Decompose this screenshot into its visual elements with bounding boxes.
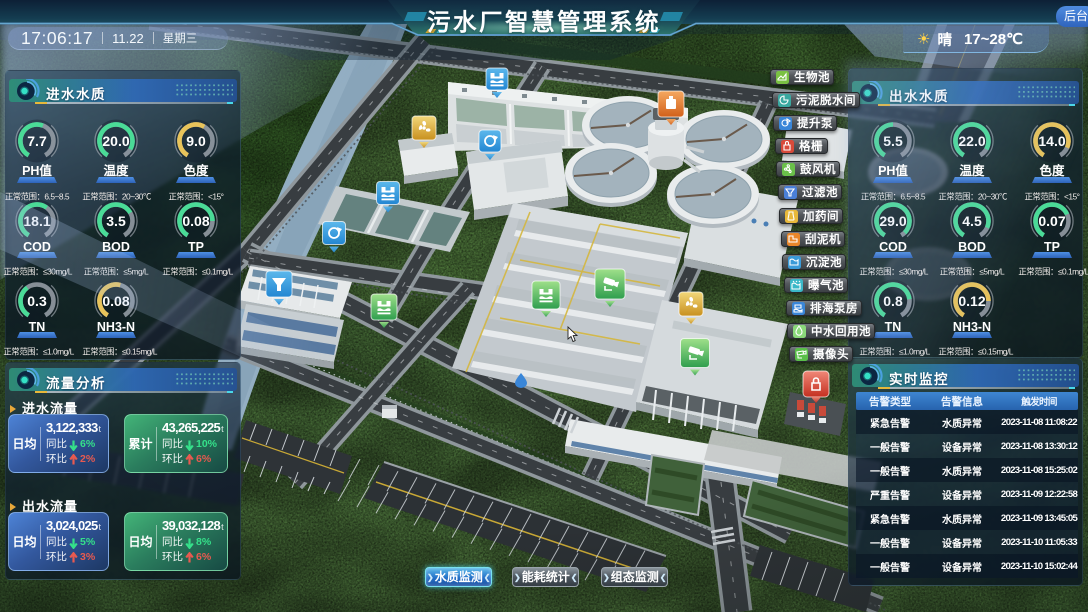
svg-text:7.7: 7.7 [27, 133, 47, 149]
svg-text:0.3: 0.3 [27, 293, 47, 309]
svg-text:9.0: 9.0 [186, 133, 206, 149]
svg-text:0.12: 0.12 [958, 293, 985, 309]
svg-text:18.1: 18.1 [23, 213, 50, 229]
svg-text:22.0: 22.0 [958, 133, 985, 149]
svg-text:0.08: 0.08 [102, 293, 129, 309]
svg-text:0.8: 0.8 [883, 293, 903, 309]
svg-text:20.0: 20.0 [102, 133, 129, 149]
svg-text:14.0: 14.0 [1038, 133, 1065, 149]
svg-text:0.08: 0.08 [182, 213, 209, 229]
svg-text:4.5: 4.5 [962, 213, 982, 229]
svg-text:5.5: 5.5 [883, 133, 903, 149]
svg-text:3.5: 3.5 [106, 213, 126, 229]
svg-text:0.07: 0.07 [1038, 213, 1065, 229]
svg-text:29.0: 29.0 [879, 213, 906, 229]
